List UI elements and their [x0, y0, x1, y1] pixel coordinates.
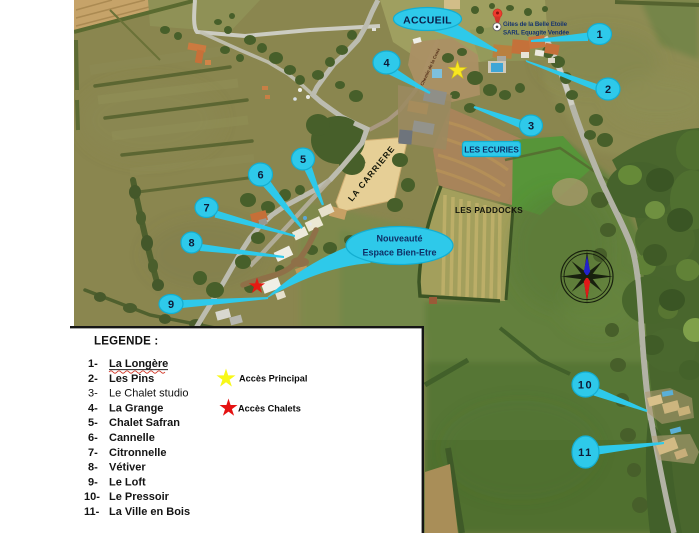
svg-text:11-: 11- [84, 506, 100, 518]
svg-text:Gites de la Belle Etoile: Gites de la Belle Etoile [503, 21, 568, 28]
svg-text:7-: 7- [88, 447, 98, 459]
svg-text:Accès Chalets: Accès Chalets [238, 404, 301, 414]
svg-text:5: 5 [300, 154, 306, 166]
svg-text:10: 10 [578, 380, 593, 392]
svg-text:LEGENDE :: LEGENDE : [94, 336, 158, 348]
svg-text:LES ECURIES: LES ECURIES [464, 146, 519, 155]
svg-text:Vétiver: Vétiver [109, 462, 146, 474]
svg-text:ACCUEIL: ACCUEIL [403, 15, 452, 27]
svg-text:Nouveauté: Nouveauté [376, 234, 422, 244]
svg-text:Le Chalet studio: Le Chalet studio [109, 388, 189, 400]
svg-text:9: 9 [168, 299, 174, 311]
svg-text:Le Loft: Le Loft [109, 476, 146, 488]
svg-text:Chalet Safran: Chalet Safran [109, 417, 180, 429]
svg-text:La Longère: La Longère [109, 358, 168, 370]
svg-text:SARL Equagite Vendée: SARL Equagite Vendée [503, 30, 570, 37]
svg-text:4: 4 [383, 58, 390, 70]
svg-text:3: 3 [528, 121, 534, 133]
svg-text:10-: 10- [84, 491, 100, 503]
svg-text:Citronnelle: Citronnelle [109, 447, 166, 459]
svg-text:Les Pins: Les Pins [109, 373, 154, 385]
svg-text:Le Pressoir: Le Pressoir [109, 491, 170, 503]
svg-text:2: 2 [605, 84, 611, 96]
svg-text:3-: 3- [88, 388, 98, 400]
svg-text:8: 8 [188, 238, 194, 250]
svg-text:11: 11 [578, 447, 593, 459]
svg-text:1: 1 [596, 29, 602, 41]
svg-text:6: 6 [257, 170, 263, 182]
svg-text:9-: 9- [88, 476, 98, 488]
svg-text:5-: 5- [88, 417, 98, 429]
svg-text:La Grange: La Grange [109, 402, 163, 414]
svg-text:7: 7 [203, 203, 209, 215]
svg-text:1-: 1- [88, 358, 98, 370]
svg-text:6-: 6- [88, 432, 98, 444]
svg-text:LES PADDOCKS: LES PADDOCKS [455, 206, 523, 215]
svg-text:8-: 8- [88, 462, 98, 474]
svg-text:Accès Principal: Accès Principal [239, 374, 307, 384]
svg-text:Espace Bien-Etre: Espace Bien-Etre [362, 248, 436, 258]
svg-text:2-: 2- [88, 373, 98, 385]
svg-text:Cannelle: Cannelle [109, 432, 155, 444]
svg-text:4-: 4- [88, 402, 98, 414]
svg-text:La Ville en Bois: La Ville en Bois [109, 506, 190, 518]
